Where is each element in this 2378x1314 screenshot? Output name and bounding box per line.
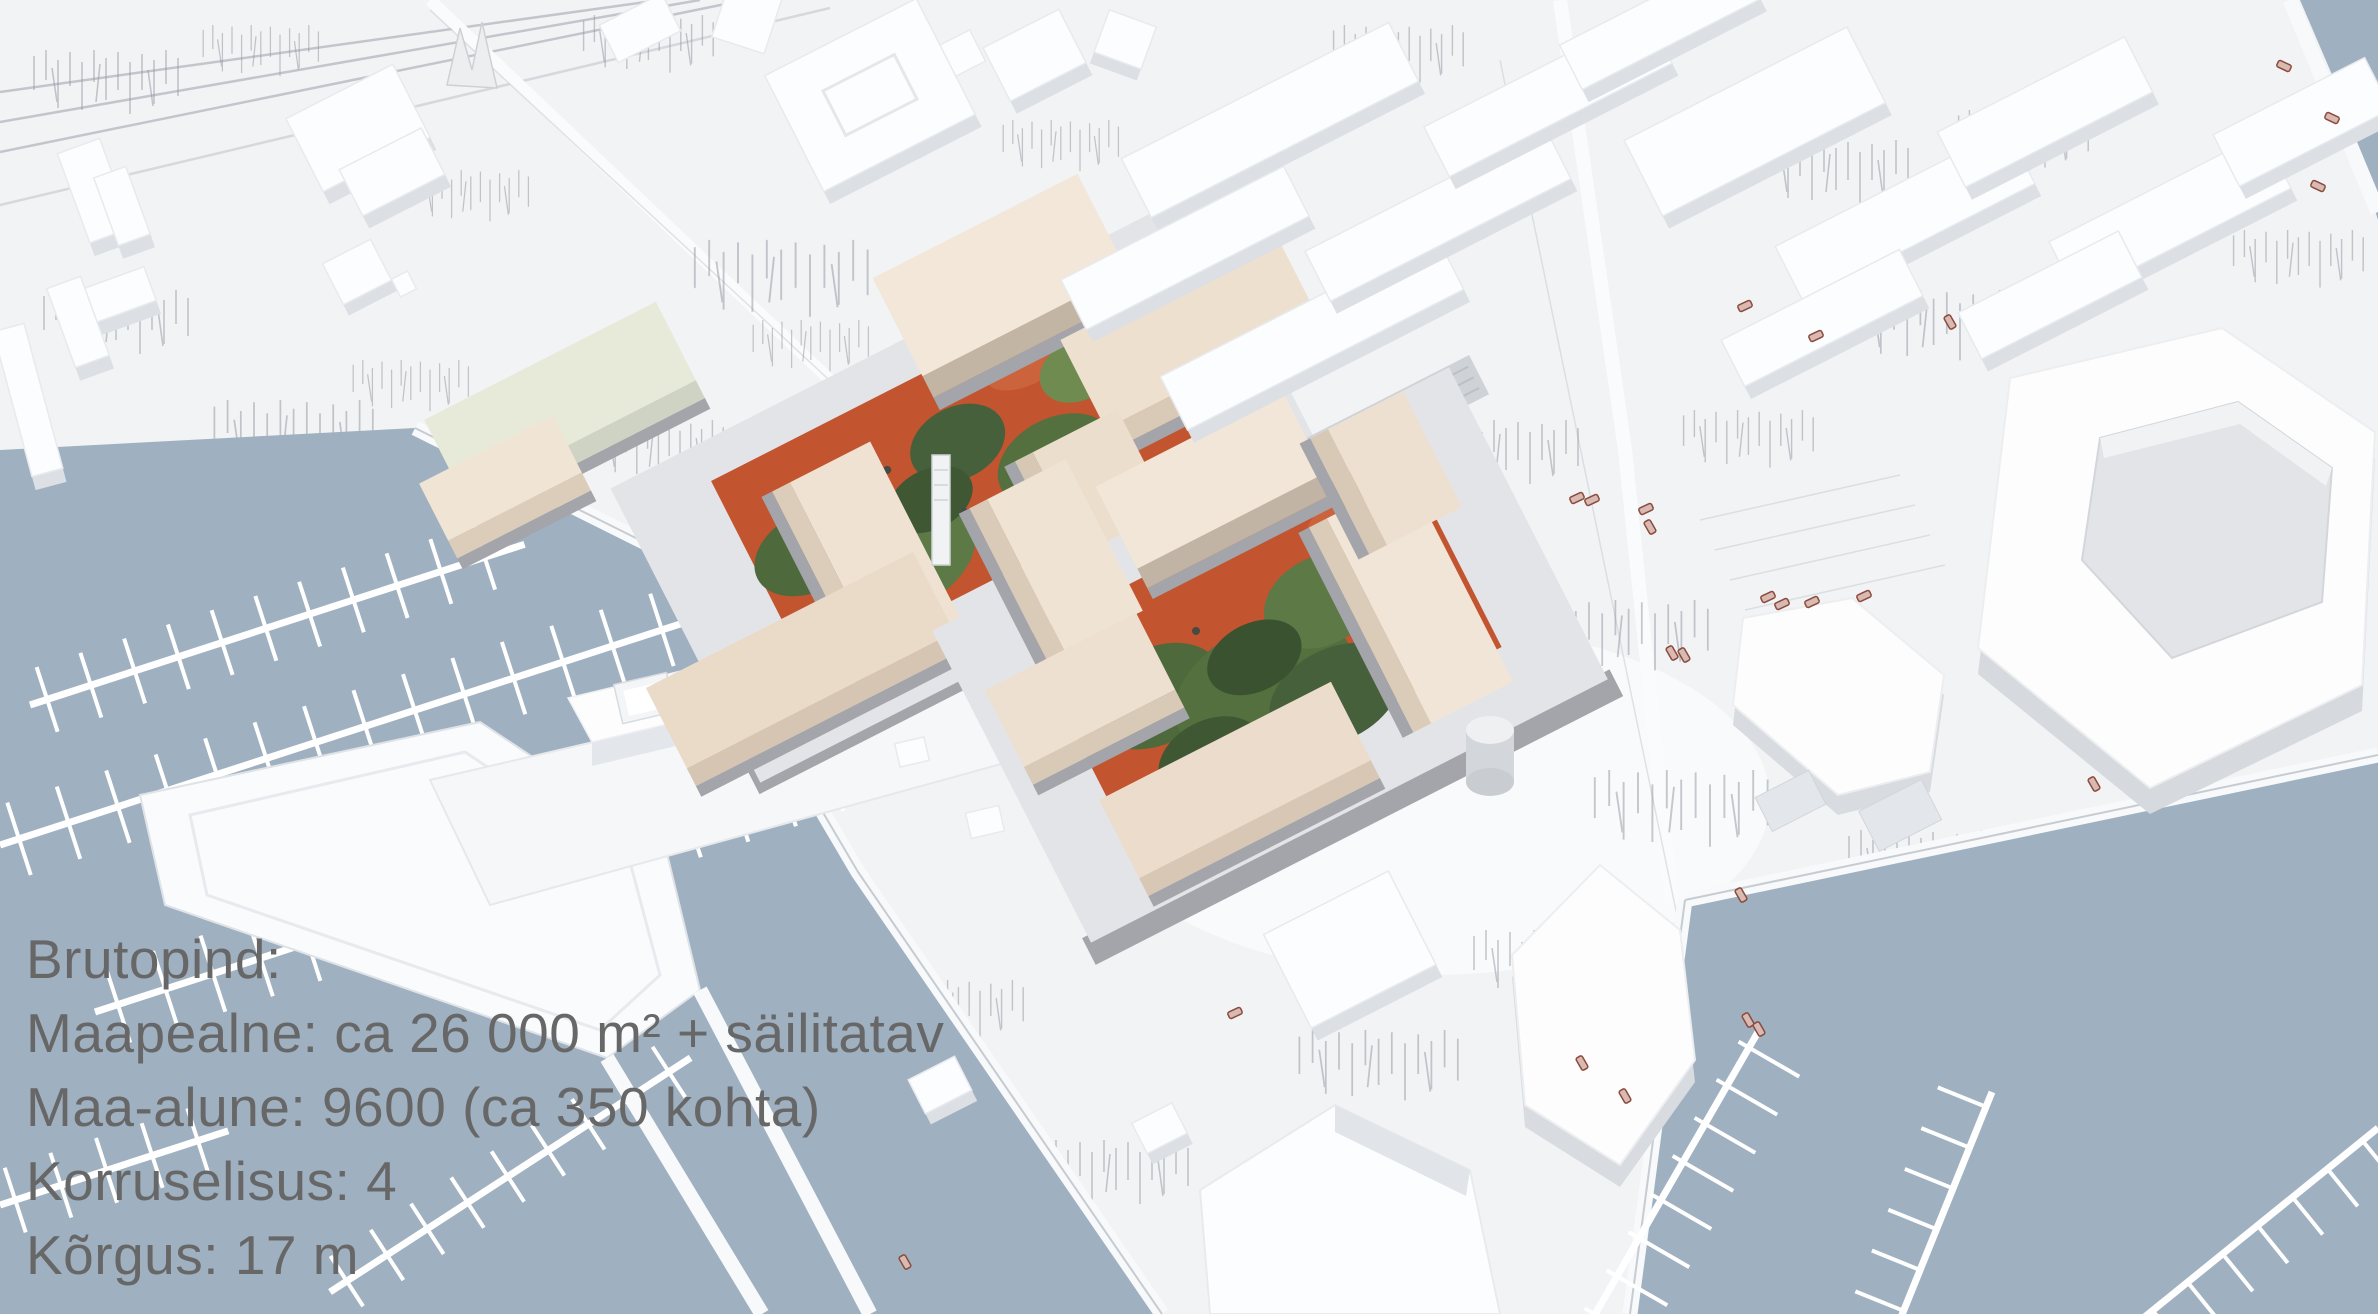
stats-overlay: Brutopind: Maapealne: ca 26 000 m² + säi… [26,922,944,1292]
stats-line-maa-alune: Maa-alune: 9600 (ca 350 kohta) [26,1070,944,1144]
architectural-render: Brutopind: Maapealne: ca 26 000 m² + säi… [0,0,2378,1314]
chimney [932,455,950,565]
stats-line-brutopind: Brutopind: [26,922,944,996]
stats-line-korgus: Kõrgus: 17 m [26,1218,944,1292]
stats-line-korruselisus: Korruselisus: 4 [26,1144,944,1218]
silo [1466,716,1514,796]
stats-line-maapealne: Maapealne: ca 26 000 m² + säilitatav [26,996,944,1070]
